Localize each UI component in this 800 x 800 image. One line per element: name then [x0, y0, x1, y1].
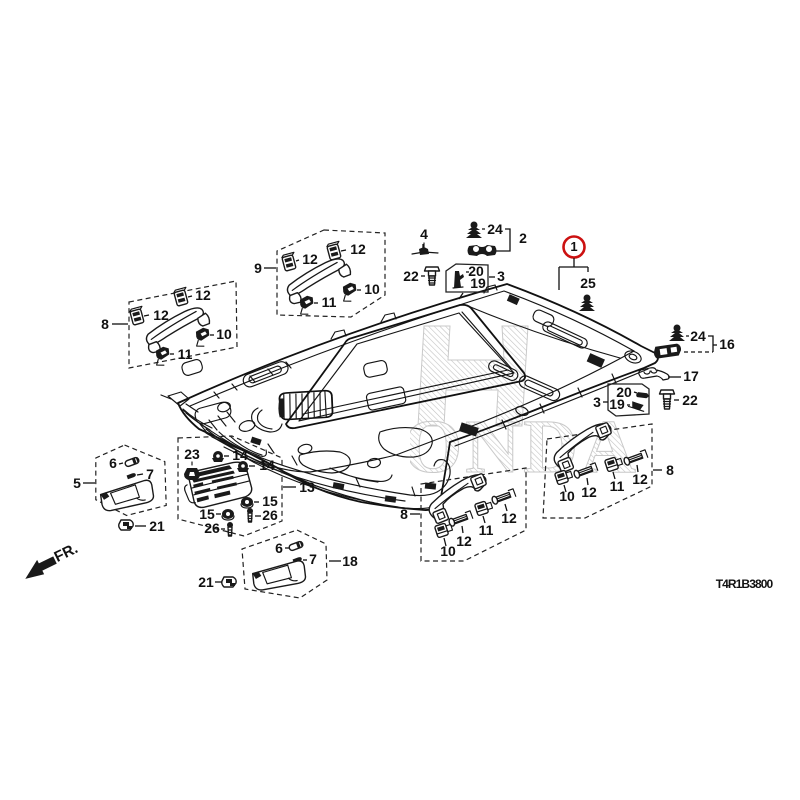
- svg-text:12: 12: [350, 241, 366, 257]
- svg-text:8: 8: [101, 316, 109, 332]
- svg-text:3: 3: [593, 394, 601, 410]
- svg-text:2: 2: [519, 230, 527, 246]
- svg-text:8: 8: [400, 506, 408, 522]
- svg-text:8: 8: [666, 462, 674, 478]
- svg-text:10: 10: [216, 326, 232, 342]
- svg-text:18: 18: [342, 553, 358, 569]
- svg-text:21: 21: [198, 574, 214, 590]
- svg-text:12: 12: [153, 307, 169, 323]
- svg-text:7: 7: [309, 551, 317, 567]
- svg-text:5: 5: [73, 475, 81, 491]
- svg-text:23: 23: [184, 446, 200, 462]
- svg-text:14: 14: [232, 447, 248, 463]
- svg-text:10: 10: [440, 543, 456, 559]
- svg-text:10: 10: [559, 488, 575, 504]
- svg-text:14: 14: [259, 457, 275, 473]
- svg-text:24: 24: [690, 328, 706, 344]
- svg-text:11: 11: [479, 522, 494, 538]
- svg-text:12: 12: [195, 287, 211, 303]
- svg-text:11: 11: [322, 294, 337, 310]
- svg-text:19: 19: [470, 275, 486, 291]
- svg-text:22: 22: [403, 268, 419, 284]
- svg-text:9: 9: [254, 260, 262, 276]
- svg-text:17: 17: [683, 368, 699, 384]
- svg-text:25: 25: [580, 275, 596, 291]
- svg-text:12: 12: [632, 471, 648, 487]
- svg-text:21: 21: [149, 518, 165, 534]
- svg-text:24: 24: [487, 221, 503, 237]
- svg-text:12: 12: [302, 251, 318, 267]
- svg-text:12: 12: [456, 533, 472, 549]
- svg-text:4: 4: [420, 226, 428, 242]
- svg-text:13: 13: [299, 479, 315, 495]
- svg-text:16: 16: [719, 336, 735, 352]
- svg-text:26: 26: [262, 507, 278, 523]
- svg-text:22: 22: [682, 392, 698, 408]
- svg-text:6: 6: [109, 455, 117, 471]
- svg-text:T4R1B3800: T4R1B3800: [716, 577, 774, 591]
- svg-text:1: 1: [570, 239, 577, 254]
- svg-text:3: 3: [497, 268, 505, 284]
- svg-text:12: 12: [501, 510, 517, 526]
- svg-text:19: 19: [609, 396, 625, 412]
- svg-text:11: 11: [610, 478, 625, 494]
- svg-text:26: 26: [204, 520, 220, 536]
- svg-text:6: 6: [275, 540, 283, 556]
- svg-text:11: 11: [178, 346, 193, 362]
- svg-text:12: 12: [581, 484, 597, 500]
- svg-text:10: 10: [364, 281, 380, 297]
